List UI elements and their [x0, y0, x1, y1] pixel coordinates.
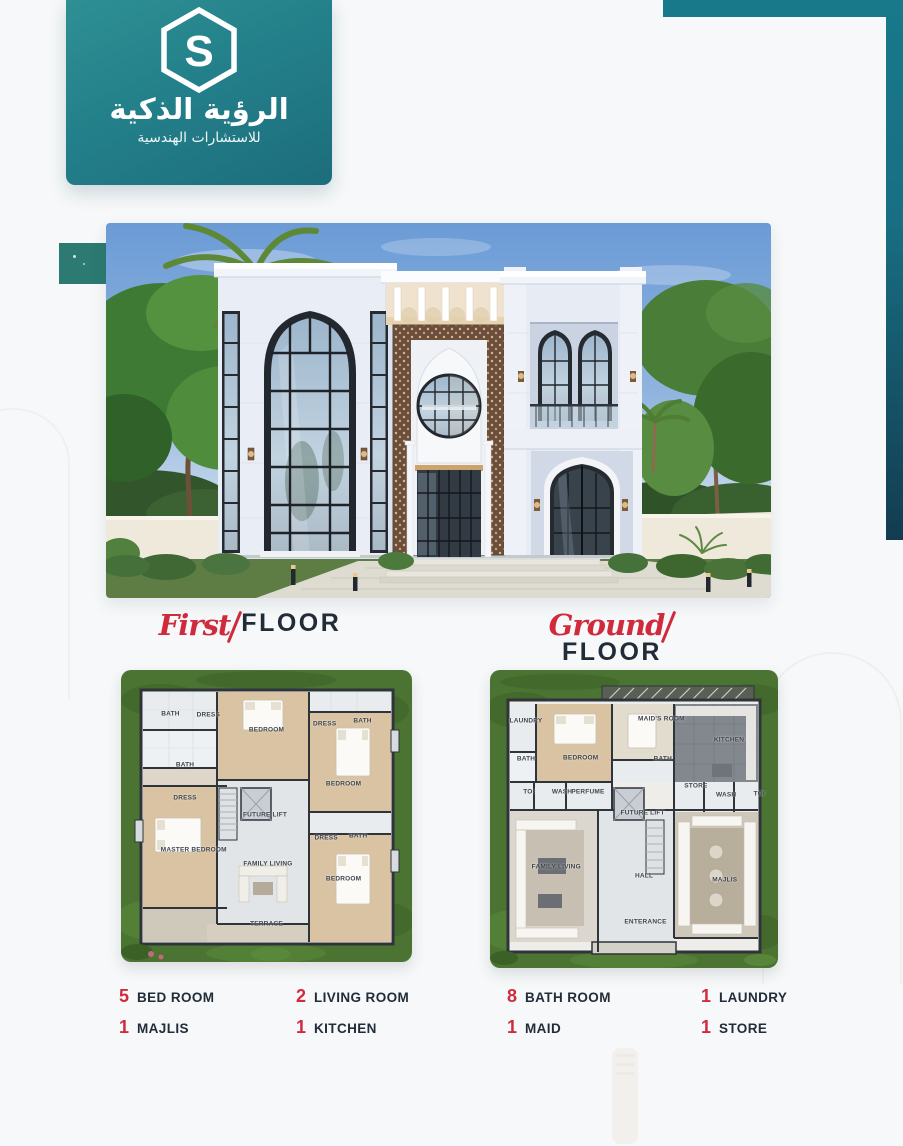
right-accent-bar	[886, 0, 903, 540]
room-label: ENTERANCE	[624, 918, 666, 925]
brand-name-arabic: الرؤية الذكية	[109, 92, 288, 126]
room-label: BATH	[349, 833, 367, 840]
features-column-2: 2LIVING ROOM 1KITCHEN	[296, 986, 409, 1048]
top-accent-bar	[663, 0, 903, 17]
brand-logo-panel: S الرؤية الذكية للاستشارات الهندسية	[66, 0, 332, 185]
villa-render-image	[106, 223, 771, 598]
first-floor-label: FLOOR	[241, 609, 341, 637]
brand-hexagon-s-icon: S	[151, 6, 247, 94]
first-floor-plan-image: BATHDRESSBEDROOMDRESSBATHBATHDRESSBEDROO…	[121, 670, 412, 962]
feature-kitchen: 1KITCHEN	[296, 1017, 409, 1035]
room-label: PERFUME	[571, 789, 604, 796]
room-label: KITCHEN	[714, 737, 744, 744]
watermark-bollard	[612, 1048, 638, 1144]
features-column-3: 8BATH ROOM 1MAID	[507, 986, 611, 1048]
feature-bath-room: 8BATH ROOM	[507, 986, 611, 1004]
room-label: TOI	[754, 790, 765, 797]
watermark-arch	[0, 408, 70, 700]
feature-maid: 1MAID	[507, 1017, 611, 1035]
room-label: DRESS	[197, 712, 220, 719]
feature-laundry: 1LAUNDRY	[701, 986, 787, 1004]
room-label: BEDROOM	[249, 726, 284, 733]
ground-floor-label: FLOOR	[562, 638, 662, 666]
room-label: BATH	[161, 710, 179, 717]
teal-accent-block	[59, 243, 107, 284]
room-label: FUTURE LIFT	[243, 811, 287, 818]
ground-floor-title: GroundFLOOR	[502, 608, 722, 652]
room-label: BATH	[353, 718, 371, 725]
room-label: MAJLIS	[712, 877, 737, 884]
feature-living-room: 2LIVING ROOM	[296, 986, 409, 1004]
room-label: BEDROOM	[563, 754, 598, 761]
room-label: FAMILY LIVING	[532, 863, 581, 870]
room-label: DRESS	[313, 721, 336, 728]
room-label: WASH	[716, 792, 736, 799]
room-label: BATH	[176, 761, 194, 768]
room-label: LAUNDRY	[510, 717, 543, 724]
room-label: FUTURE LIFT	[621, 810, 665, 817]
room-label: MAID'S ROOM	[638, 716, 685, 723]
room-label: DRESS	[173, 795, 196, 802]
room-label: HALL	[635, 872, 653, 879]
watermark-arch	[762, 652, 902, 984]
room-label: TOI	[523, 789, 534, 796]
room-label: TERRACE	[250, 921, 283, 928]
ground-floor-room-labels: LAUNDRYBEDROOMMAID'S ROOMKITCHENBATHBATH…	[490, 670, 778, 968]
first-floor-script: First	[159, 608, 231, 642]
room-label: WASH	[552, 789, 572, 796]
room-label: BEDROOM	[326, 780, 361, 787]
room-label: BATH	[517, 756, 535, 763]
feature-majlis: 1MAJLIS	[119, 1017, 214, 1035]
features-column-1: 5BED ROOM 1MAJLIS	[119, 986, 214, 1048]
room-label: MASTER BEDROOM	[161, 846, 227, 853]
room-label: DRESS	[314, 834, 337, 841]
feature-store: 1STORE	[701, 1017, 787, 1035]
ground-floor-script: Ground	[549, 608, 665, 642]
room-label: STORE	[684, 783, 707, 790]
room-label: FAMILY LIVING	[243, 861, 292, 868]
first-floor-room-labels: BATHDRESSBEDROOMDRESSBATHBATHDRESSBEDROO…	[121, 670, 412, 962]
logo-letter: S	[184, 27, 213, 76]
ground-floor-plan-image: LAUNDRYBEDROOMMAID'S ROOMKITCHENBATHBATH…	[490, 670, 778, 968]
features-column-4: 1LAUNDRY 1STORE	[701, 986, 787, 1048]
room-label: BATH	[654, 756, 672, 763]
brand-tagline-arabic: للاستشارات الهندسية	[137, 128, 260, 148]
feature-bed-room: 5BED ROOM	[119, 986, 214, 1004]
room-label: BEDROOM	[326, 875, 361, 882]
first-floor-title: FirstFLOOR	[140, 608, 360, 652]
